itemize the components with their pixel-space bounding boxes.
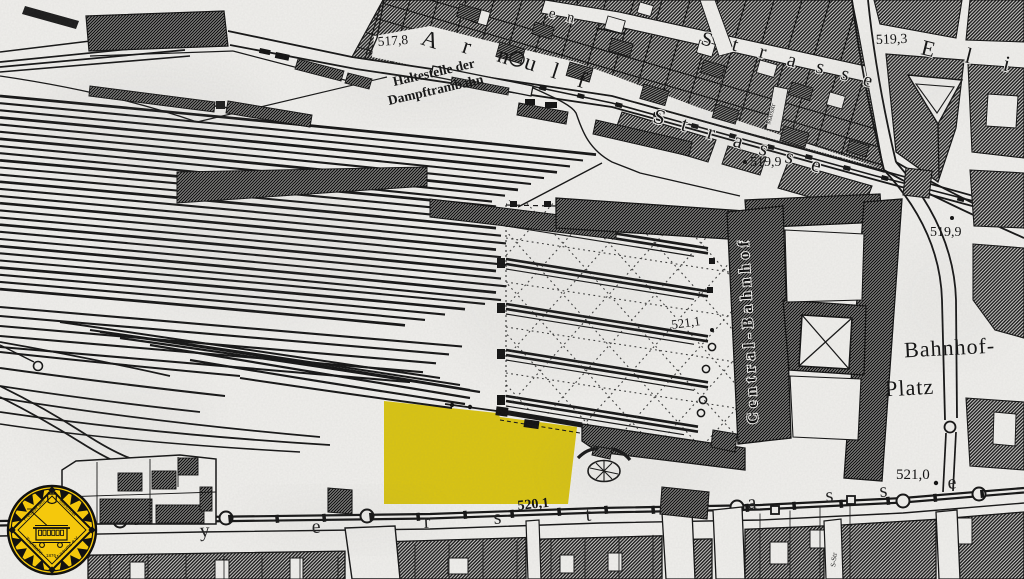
svg-text:1876: 1876 (46, 553, 57, 558)
